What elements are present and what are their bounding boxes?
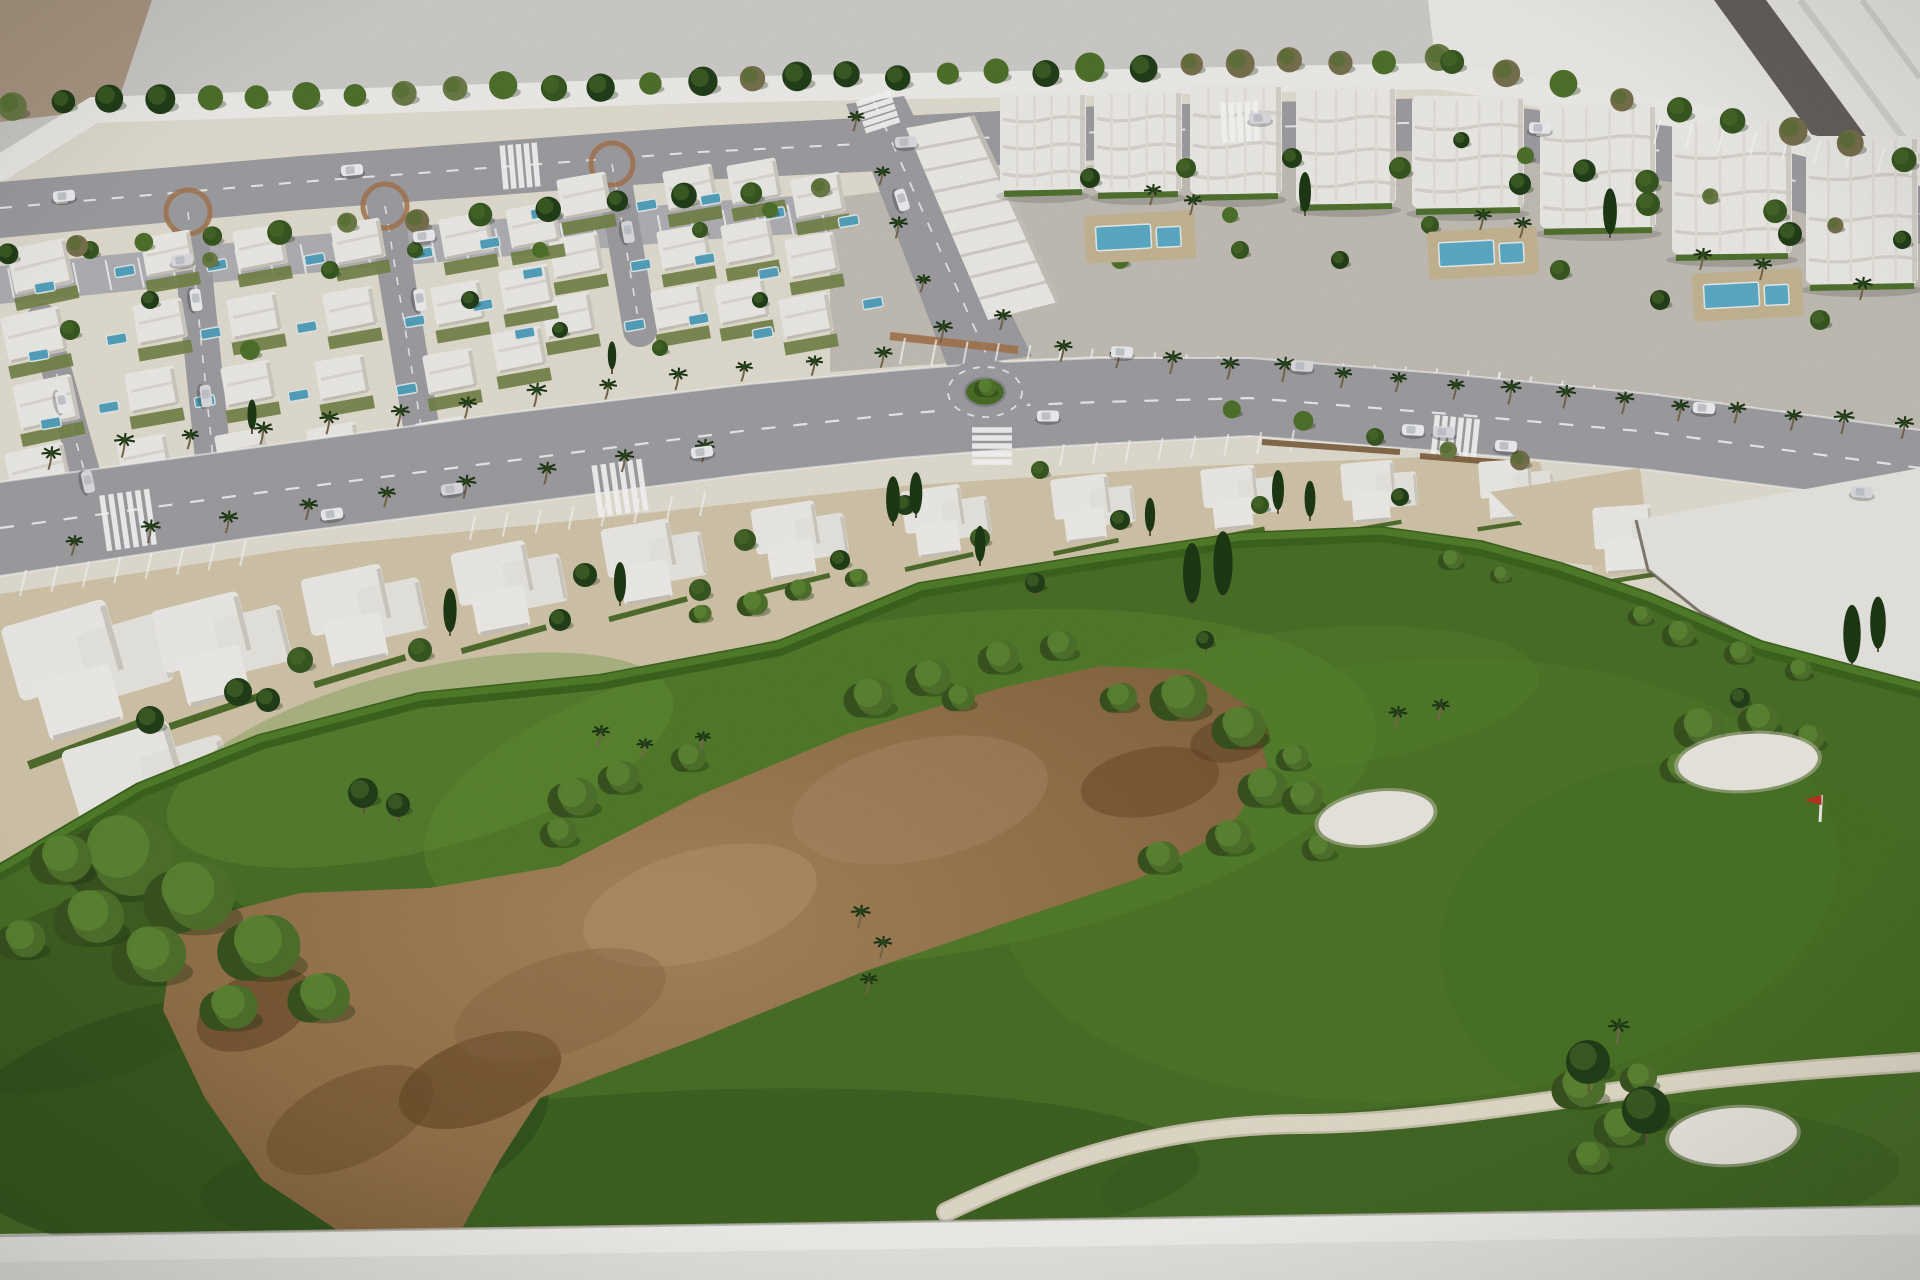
photo-of-architectural-model: Aerial photo of a white architectural sc… [0, 0, 1920, 1280]
scale-model-scene [0, 0, 1920, 1280]
photo-vignette [0, 0, 1920, 1280]
